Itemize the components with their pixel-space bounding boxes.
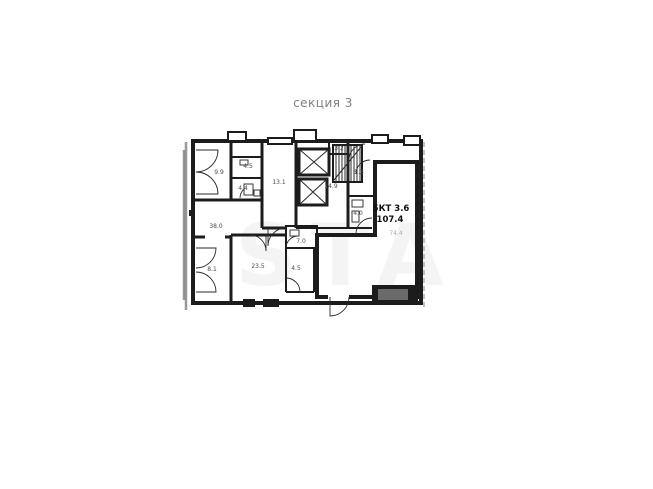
unit-living-area: 74.4 <box>389 230 403 237</box>
label-hall-13-1: 13.1 <box>272 179 286 186</box>
label-room-4-0: 4.0 <box>353 210 363 217</box>
floorplan-canvas: STA 5КТ 3.6 107.4 74.4 <box>0 0 653 489</box>
elevator-shafts <box>299 149 329 205</box>
label-room-5-3: 5.3 <box>354 169 364 176</box>
label-room-38-0: 38.0 <box>209 223 223 230</box>
unit-total-area: 107.4 <box>377 215 404 225</box>
label-room-4-4: 4.4 <box>238 185 248 192</box>
label-corridor-14-9: 14.9 <box>324 183 338 190</box>
label-room-23-5: 23.5 <box>251 263 265 270</box>
unit-type-label: 5КТ 3.6 <box>373 204 410 214</box>
label-room-7-0: 7.0 <box>296 238 306 245</box>
label-room-4-5-bottom: 4.5 <box>291 265 301 272</box>
label-room-8-1: 8.1 <box>207 266 217 273</box>
label-room-3-2: 3.2 <box>334 145 344 152</box>
label-room-9-9: 9.9 <box>214 169 224 176</box>
neighbor-balcony-block <box>372 285 418 304</box>
label-room-4-5-top: 4.5 <box>243 163 253 170</box>
wall-marker <box>189 210 195 216</box>
floorplan-viewer: секция 3 STA 5КТ 3.6 107.4 74.4 <box>0 0 653 489</box>
